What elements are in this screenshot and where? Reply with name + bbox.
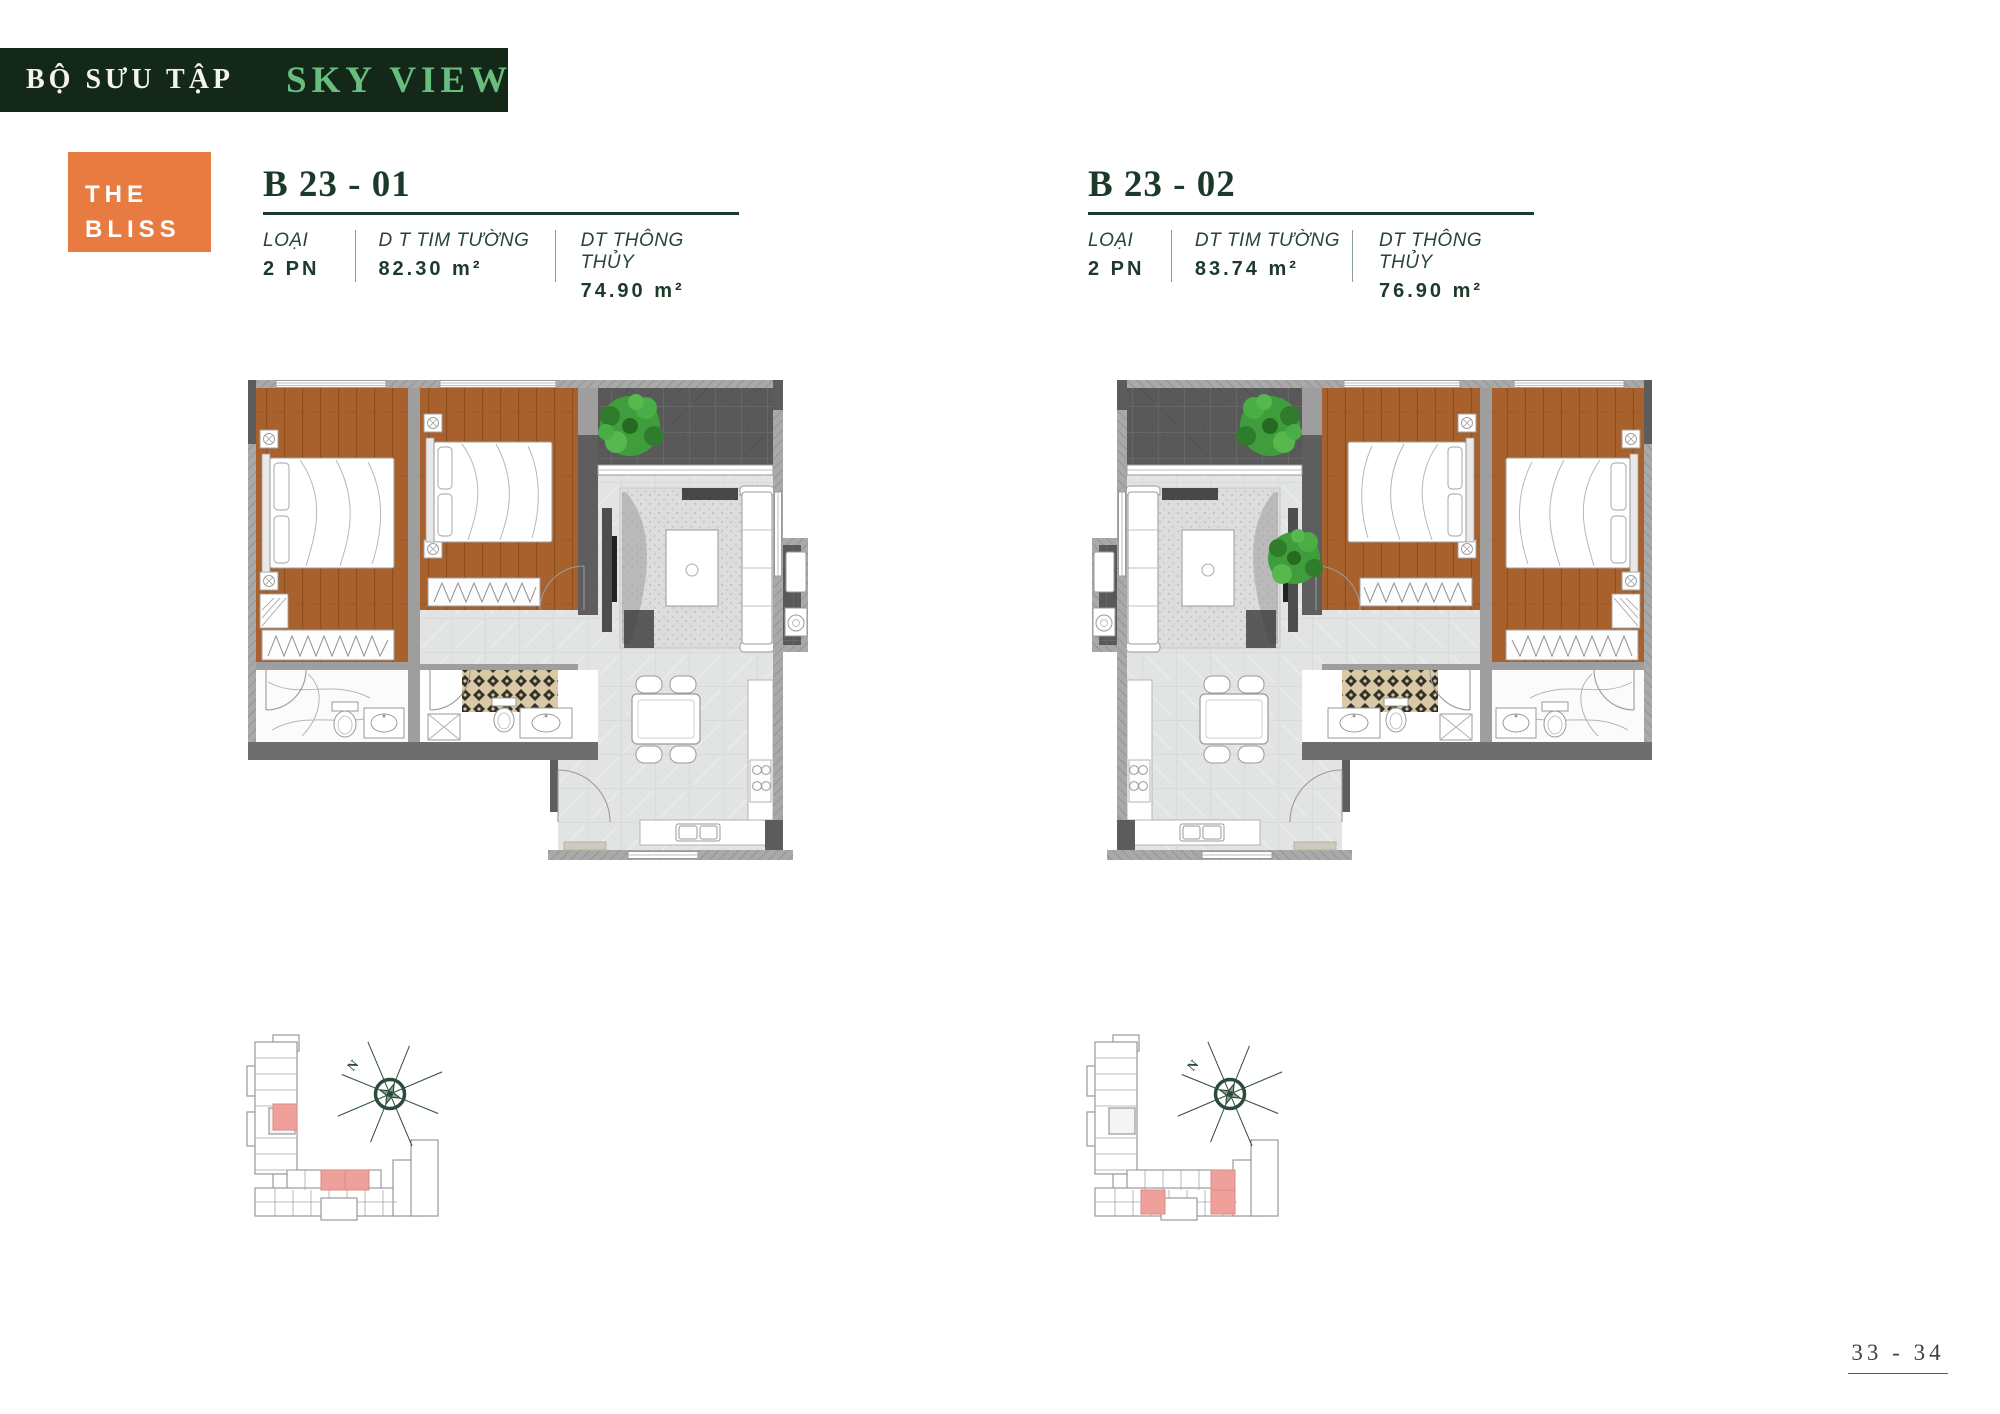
unit-header-b23-02: B 23 - 02 LOẠI 2 PN DT TIM TƯỜNG 83.74 m… (1088, 166, 1534, 303)
unit-code: B 23 - 02 (1088, 166, 1534, 215)
spec-label: DT TIM TƯỜNG (1195, 230, 1352, 252)
unit-specs: LOẠI 2 PN DT TIM TƯỜNG 83.74 m² DT THÔNG… (1088, 230, 1534, 303)
logo-line-1: THE (85, 178, 211, 213)
spec-value: 83.74 m² (1195, 258, 1352, 281)
spec-value: 82.30 m² (378, 258, 554, 281)
spec-gross-area: D T TIM TƯỜNG 82.30 m² (356, 230, 554, 303)
unit-code: B 23 - 01 (263, 166, 739, 215)
page-number: 33 - 34 (1848, 1340, 1948, 1374)
site-plan-b23-02: N (1065, 1032, 1285, 1232)
brochure-page: BỘ SƯU TẬP SKY VIEW THE BLISS B 23 - 01 … (0, 0, 2000, 1414)
compass-north-label: N (344, 1056, 362, 1073)
collection-name: SKY VIEW (286, 59, 512, 102)
spec-value: 74.90 m² (581, 280, 739, 303)
site-plan-b23-02-drawing: N (1065, 1032, 1285, 1232)
logo-line-2: BLISS (85, 213, 211, 248)
spec-value: 2 PN (1088, 258, 1171, 281)
collection-label: BỘ SƯU TẬP (26, 64, 234, 96)
spec-label: DT THÔNG THỦY (581, 230, 739, 274)
spec-label: D T TIM TƯỜNG (378, 230, 554, 252)
spec-label: LOẠI (1088, 230, 1171, 252)
floor-plan-b23-02-drawing (1092, 380, 1652, 860)
the-bliss-logo: THE BLISS (68, 152, 211, 252)
spec-net-area: DT THÔNG THỦY 76.90 m² (1353, 230, 1534, 303)
site-plan-b23-01-drawing: N (225, 1032, 445, 1232)
spec-label: LOẠI (263, 230, 355, 252)
spec-net-area: DT THÔNG THỦY 74.90 m² (556, 230, 739, 303)
compass-north-label: N (1184, 1056, 1202, 1073)
floor-plan-b23-01-drawing (248, 380, 808, 860)
floor-plan-b23-02 (1092, 380, 1652, 860)
spec-gross-area: DT TIM TƯỜNG 83.74 m² (1172, 230, 1352, 303)
floor-plan-b23-01 (248, 380, 808, 860)
unit-header-b23-01: B 23 - 01 LOẠI 2 PN D T TIM TƯỜNG 82.30 … (263, 166, 739, 303)
spec-value: 2 PN (263, 258, 355, 281)
spec-label: DT THÔNG THỦY (1379, 230, 1534, 274)
unit-specs: LOẠI 2 PN D T TIM TƯỜNG 82.30 m² DT THÔN… (263, 230, 739, 303)
spec-type: LOẠI 2 PN (1088, 230, 1171, 303)
spec-type: LOẠI 2 PN (263, 230, 355, 303)
site-plan-b23-01: N (225, 1032, 445, 1232)
collection-banner: BỘ SƯU TẬP SKY VIEW (0, 48, 508, 112)
spec-value: 76.90 m² (1379, 280, 1534, 303)
